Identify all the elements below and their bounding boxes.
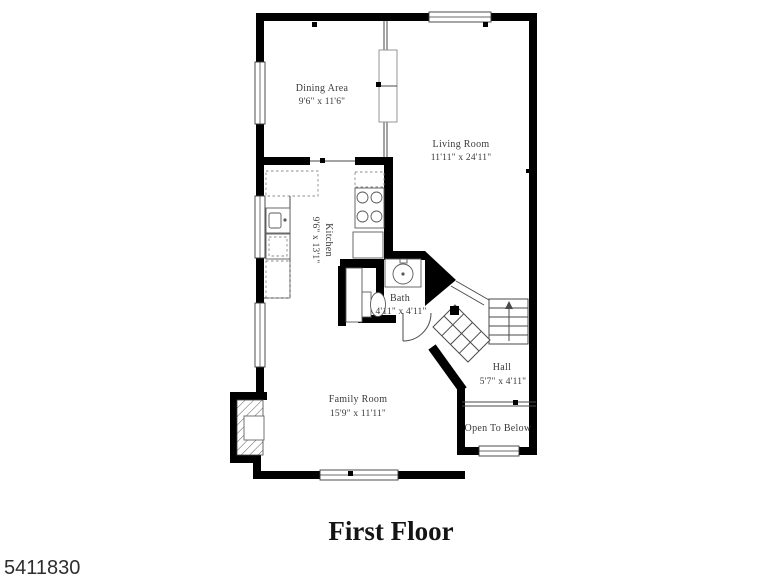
floor-plan-drawing: Dining Area 9'6" x 11'6" Living Room 11'…	[0, 0, 768, 576]
base-cabinets	[266, 261, 290, 298]
family-room-dims: 15'9" x 11'11"	[330, 409, 386, 419]
floor-plan-page: Dining Area 9'6" x 11'6" Living Room 11'…	[0, 0, 768, 576]
kitchen-dims: 9'6" x 13'1"	[310, 217, 320, 264]
stairs	[433, 281, 528, 362]
stair-railing	[451, 281, 489, 305]
listing-id: 5411830	[4, 557, 80, 576]
dishwasher	[266, 234, 290, 259]
window	[255, 303, 265, 367]
bath-label: Bath	[390, 293, 410, 304]
window	[320, 470, 398, 480]
living-room-dims: 11'11" x 24'11"	[431, 153, 492, 163]
vanity-sink	[385, 259, 421, 287]
window	[429, 12, 491, 22]
page-title: First Floor	[328, 516, 453, 546]
open-to-below-label: Open To Below	[465, 423, 532, 434]
living-room-label: Living Room	[433, 139, 490, 150]
stairs-straight-run	[489, 299, 528, 344]
kitchen-sink	[266, 208, 290, 233]
fireplace	[230, 392, 267, 463]
dining-living-builtin	[379, 50, 397, 122]
kitchen-label: Kitchen	[323, 223, 334, 257]
window	[255, 62, 265, 124]
family-room-label: Family Room	[329, 394, 388, 405]
openings-and-railings	[310, 21, 536, 406]
bath-door-swing	[403, 313, 431, 341]
pantry-closet	[346, 268, 362, 322]
hall-label: Hall	[493, 362, 511, 373]
dining-area-label: Dining Area	[296, 83, 349, 94]
stove	[355, 188, 384, 228]
dining-area-dims: 9'6" x 11'6"	[299, 97, 345, 107]
window	[255, 196, 265, 258]
window	[479, 446, 519, 456]
upper-cabinets	[266, 171, 318, 196]
hall-dims: 5'7" x 4'11"	[480, 377, 526, 387]
refrigerator	[353, 232, 383, 258]
bath-dims: 4'11" x 4'11"	[375, 307, 426, 317]
